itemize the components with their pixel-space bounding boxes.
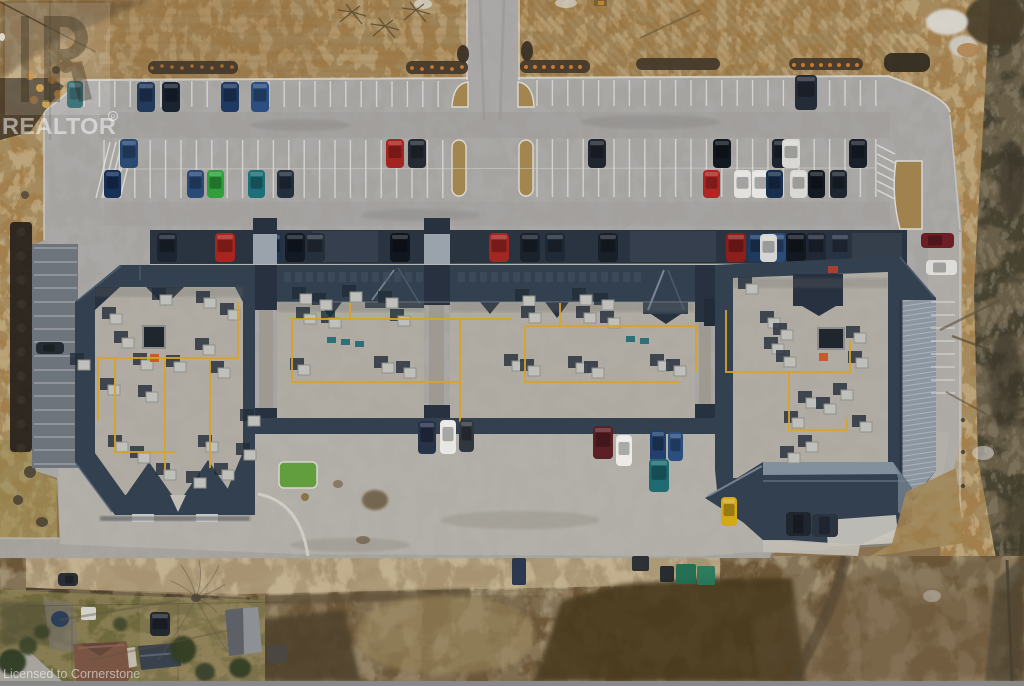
svg-text:R: R <box>111 115 116 122</box>
svg-text:REALTOR: REALTOR <box>2 113 116 139</box>
svg-text:Licensed to Cornerstone: Licensed to Cornerstone <box>3 667 140 681</box>
